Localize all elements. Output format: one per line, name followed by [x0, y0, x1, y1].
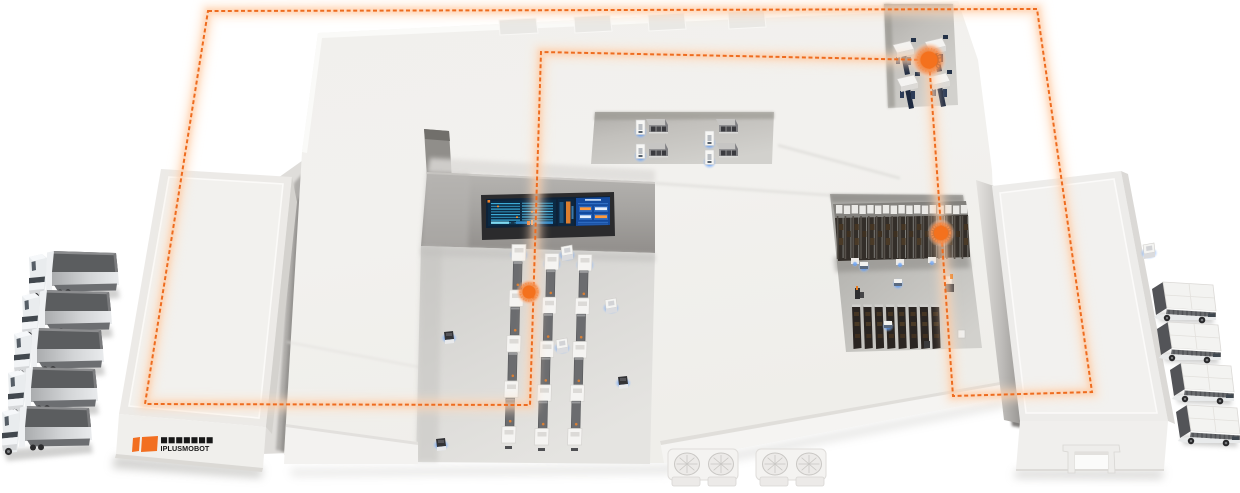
svg-text:IPLUSMOBOT: IPLUSMOBOT: [161, 444, 210, 453]
